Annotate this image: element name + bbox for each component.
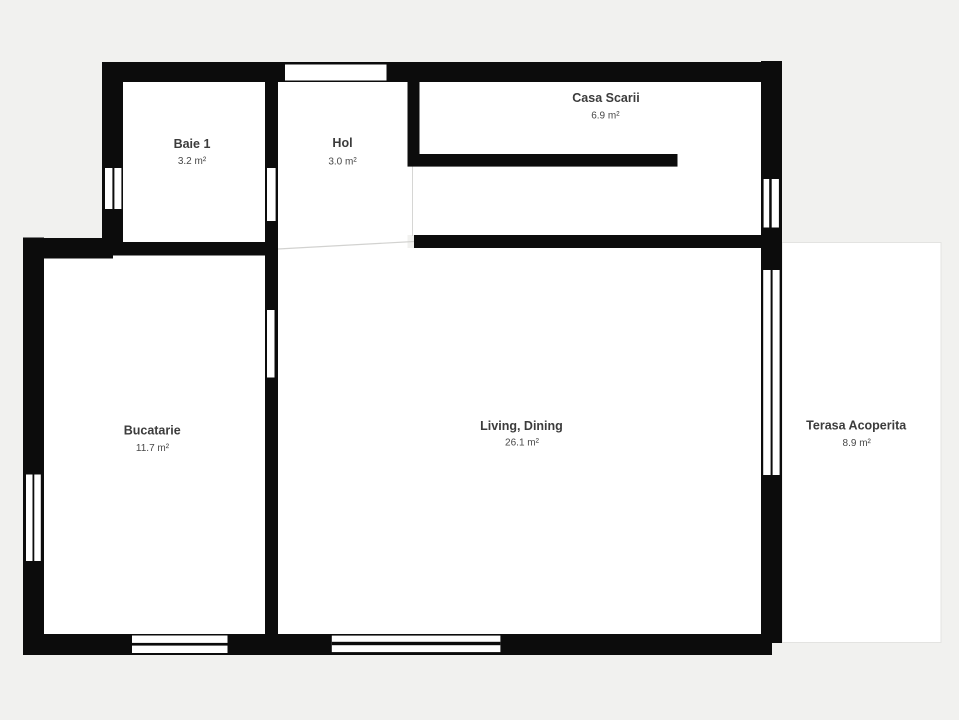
svg-text:11.7 m²: 11.7 m² (136, 443, 170, 454)
svg-text:26.1 m²: 26.1 m² (505, 438, 540, 449)
svg-text:Hol: Hol (332, 136, 352, 150)
svg-text:Terasa Acoperita: Terasa Acoperita (806, 419, 907, 433)
svg-text:6.9 m²: 6.9 m² (591, 110, 620, 121)
svg-text:8.9 m²: 8.9 m² (843, 438, 872, 449)
svg-text:Bucatarie: Bucatarie (124, 423, 181, 437)
svg-text:Baie 1: Baie 1 (174, 137, 211, 151)
svg-text:Living, Dining: Living, Dining (480, 419, 563, 433)
svg-text:3.0 m²: 3.0 m² (328, 156, 357, 167)
svg-text:3.2 m²: 3.2 m² (178, 156, 207, 167)
svg-text:Casa Scarii: Casa Scarii (572, 91, 639, 105)
